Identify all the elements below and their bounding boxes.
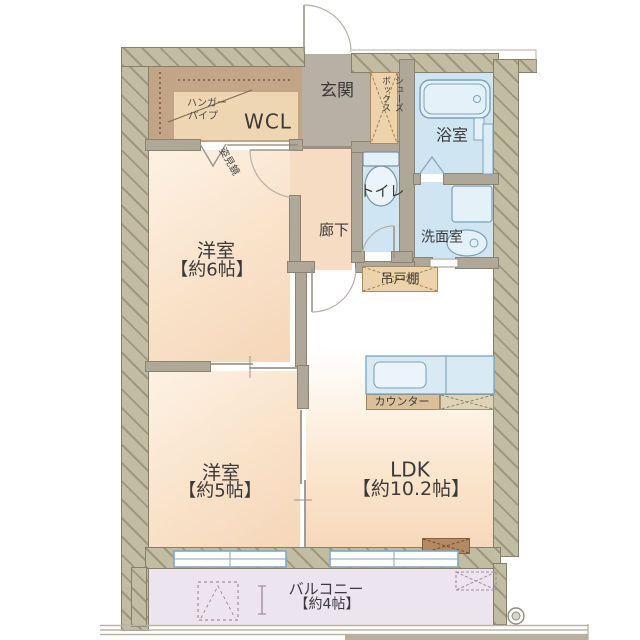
- wall-segment: [122, 48, 304, 66]
- toilet-floor: [358, 152, 400, 252]
- wall-segment: [494, 564, 506, 624]
- balcony-railing-bar: [345, 635, 588, 640]
- wall-segment: [146, 140, 200, 150]
- washroom-floor: [414, 182, 494, 258]
- balcony-railing: [100, 624, 588, 640]
- wall-segment: [122, 48, 148, 630]
- shoe-box-label-2: ボックス: [380, 76, 390, 112]
- bathroom-label: 浴室: [436, 128, 468, 145]
- ldk-size-label: 【約10.2帖】: [352, 480, 470, 500]
- balcony-name-label: バルコニー: [289, 582, 364, 598]
- wall-segment: [414, 174, 420, 184]
- bathroom-floor: [414, 72, 494, 174]
- hallway-label: 廊下: [319, 223, 349, 239]
- washroom-label: 洗面室: [421, 231, 463, 246]
- genkan-label: 玄関: [320, 83, 354, 101]
- counter-label: カウンター: [375, 396, 430, 408]
- entrance-step: [302, 146, 352, 149]
- wall-segment: [290, 140, 302, 150]
- ldk-cabinet: [422, 538, 470, 554]
- wall-segment: [352, 252, 364, 262]
- bedroom5-floor: [146, 371, 300, 548]
- wall-segment: [352, 148, 362, 262]
- bedroom6-size-label: 【約6帖】: [170, 262, 253, 281]
- drain-pipe-icon: [508, 608, 524, 624]
- wall-segment: [494, 60, 518, 556]
- toilet-label: トイレ: [359, 184, 404, 200]
- wall-segment: [352, 54, 498, 72]
- wall-segment: [392, 252, 412, 262]
- wall-segment: [288, 262, 314, 272]
- floor-plan: ハンガー パイプ WCL 姿見鏡 玄関 シューズボックス 浴室 トイレ 廊下 洗…: [0, 0, 640, 640]
- wall-segment: [296, 270, 306, 366]
- hanging-cupboard-label: 吊戸棚: [380, 273, 419, 287]
- shoe-box-label-1: シューズ: [393, 76, 403, 112]
- wcl-label: WCL: [244, 112, 292, 133]
- hanger-pipe-label-1: ハンガー: [187, 99, 227, 110]
- wall-segment: [444, 174, 498, 184]
- wall-segment: [290, 196, 300, 270]
- drain-pipe-icon: [512, 612, 520, 620]
- hanger-pipe-label-2: パイプ: [188, 112, 218, 123]
- bedroom5-size-label: 【約5帖】: [178, 483, 261, 502]
- counter-side-cabinet: [440, 394, 494, 410]
- wall-segment: [146, 362, 210, 371]
- wall-segment: [456, 258, 498, 268]
- balcony-size-label: 【約4帖】: [295, 598, 360, 613]
- wall-segment: [132, 568, 146, 626]
- shoe-box-label: シューズボックス: [378, 76, 404, 112]
- entrance-door-arc: [304, 5, 351, 52]
- wall-segment: [298, 366, 308, 408]
